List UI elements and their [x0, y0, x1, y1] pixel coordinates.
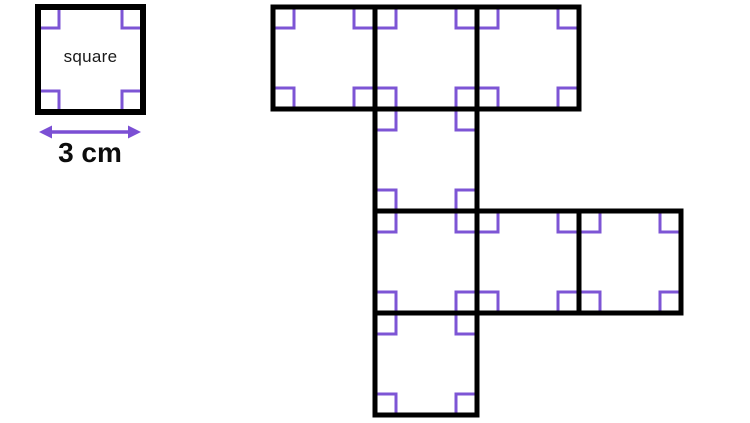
- net-square-right-angle-marker: [456, 190, 477, 211]
- net-square-outline: [477, 7, 579, 109]
- dimension-label: 3 cm: [20, 137, 160, 169]
- reference-square-right-angle-marker: [122, 91, 143, 112]
- net-square-right-angle-marker: [558, 7, 579, 28]
- net-square-right-angle-marker: [660, 292, 681, 313]
- reference-square-right-angle-marker: [38, 91, 59, 112]
- net-square-right-angle-marker: [375, 109, 396, 130]
- net-square-right-angle-marker: [477, 211, 498, 232]
- net-square-right-angle-marker: [477, 292, 498, 313]
- reference-square-right-angle-marker: [38, 7, 59, 28]
- net-square-right-angle-marker: [456, 394, 477, 415]
- geometry-diagram: square 3 cm: [0, 0, 750, 423]
- net-square-outline: [375, 7, 477, 109]
- net-square-right-angle-marker: [375, 394, 396, 415]
- net-square-right-angle-marker: [354, 7, 375, 28]
- net-square-right-angle-marker: [456, 292, 477, 313]
- net-square-right-angle-marker: [375, 7, 396, 28]
- net-square-right-angle-marker: [579, 211, 600, 232]
- net-square-right-angle-marker: [375, 313, 396, 334]
- net-square-right-angle-marker: [273, 88, 294, 109]
- net-square-outline: [273, 7, 375, 109]
- net-square-right-angle-marker: [477, 7, 498, 28]
- net-square-right-angle-marker: [558, 292, 579, 313]
- net-square-outline: [477, 211, 579, 313]
- net-square-right-angle-marker: [477, 88, 498, 109]
- net-square-right-angle-marker: [375, 190, 396, 211]
- net-square-right-angle-marker: [558, 211, 579, 232]
- net-square-right-angle-marker: [375, 88, 396, 109]
- net-square-right-angle-marker: [456, 88, 477, 109]
- net-square-right-angle-marker: [456, 7, 477, 28]
- net-square-right-angle-marker: [660, 211, 681, 232]
- net-square-outline: [375, 109, 477, 211]
- net-square-right-angle-marker: [579, 292, 600, 313]
- net-square-outline: [579, 211, 681, 313]
- reference-square-label: square: [38, 47, 143, 67]
- net-square-right-angle-marker: [558, 88, 579, 109]
- net-square-right-angle-marker: [375, 292, 396, 313]
- net-square-right-angle-marker: [273, 7, 294, 28]
- net-square-right-angle-marker: [456, 109, 477, 130]
- net-square-right-angle-marker: [456, 313, 477, 334]
- net-square-right-angle-marker: [456, 211, 477, 232]
- net-square-outline: [375, 313, 477, 415]
- net-square-right-angle-marker: [375, 211, 396, 232]
- net-square-outline: [375, 211, 477, 313]
- reference-square-right-angle-marker: [122, 7, 143, 28]
- net-square-right-angle-marker: [354, 88, 375, 109]
